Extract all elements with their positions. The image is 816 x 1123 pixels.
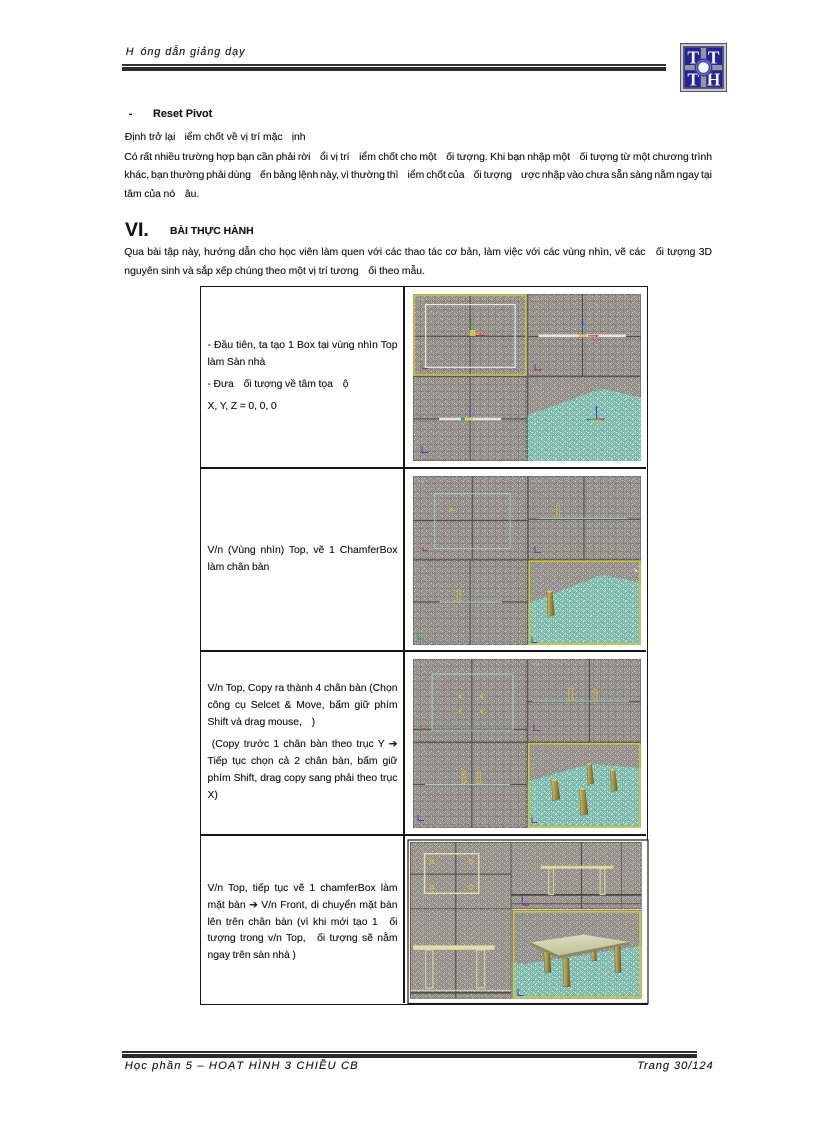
svg-text:Left: Left [417,746,425,751]
svg-text:Perspective: Perspective [531,380,555,385]
svg-text:Left: Left [417,563,425,568]
svg-text:Top: Top [417,297,425,302]
svg-text:Front: Front [532,297,543,302]
svg-text:Top: Top [417,662,425,667]
svg-text:Perspective: Perspective [532,563,556,568]
svg-text:Perspective: Perspective [532,746,556,751]
svg-text:Perspective: Perspective [517,914,541,919]
svg-text:Front: Front [532,662,543,667]
svg-text:Left: Left [417,380,425,385]
svg-text:Top: Top [417,479,425,484]
svg-text:Front: Front [532,479,543,484]
